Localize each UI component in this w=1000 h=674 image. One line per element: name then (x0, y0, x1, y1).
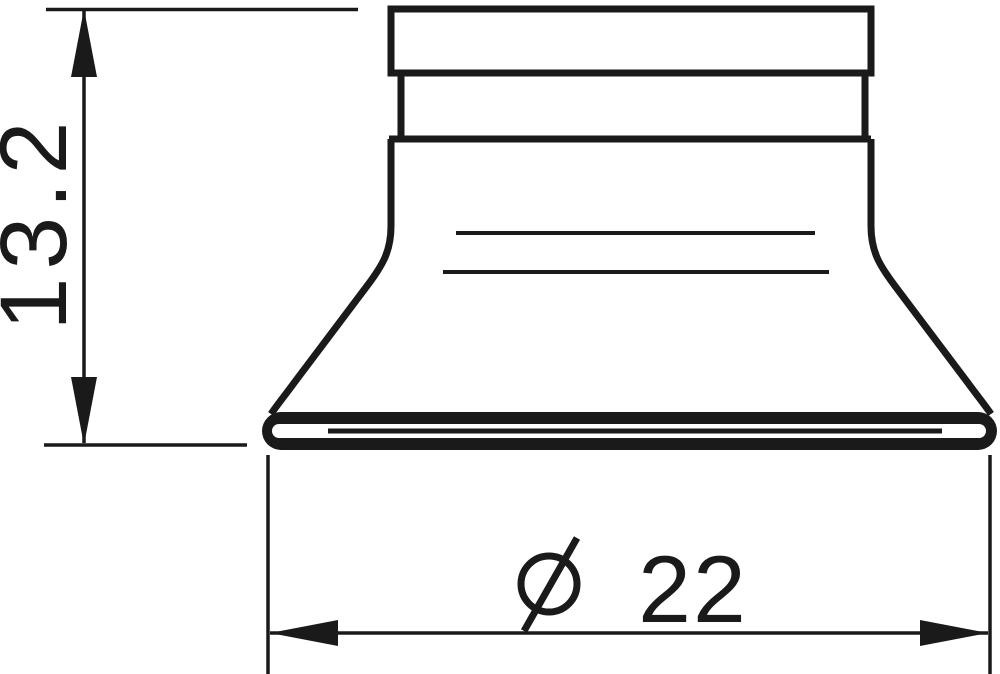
arrowhead-right-icon (920, 620, 988, 646)
arrowhead-up-icon (71, 9, 97, 77)
cup-groove-band (401, 73, 865, 139)
diameter-dimension-value: 22 (638, 537, 748, 643)
height-dimension-value: 13.2 (0, 114, 87, 331)
cup-top-cap-band (391, 9, 871, 73)
cup-skirt-left-wall (271, 139, 391, 414)
diameter-symbol-icon (521, 538, 577, 631)
diameter-dimension: 22 (268, 455, 990, 674)
arrowhead-down-icon (71, 377, 97, 445)
cup-skirt-right-wall (871, 139, 991, 414)
cup-outline (271, 9, 991, 414)
technical-drawing-suction-cup: 13.2 22 (0, 0, 1000, 674)
cup-inner-fold-lines (443, 233, 829, 272)
diameter-symbol-slash (524, 538, 577, 631)
arrowhead-left-icon (270, 620, 338, 646)
cup-lip (262, 412, 997, 450)
height-dimension: 13.2 (0, 9, 358, 445)
drawing-svg: 13.2 22 (0, 0, 1000, 674)
